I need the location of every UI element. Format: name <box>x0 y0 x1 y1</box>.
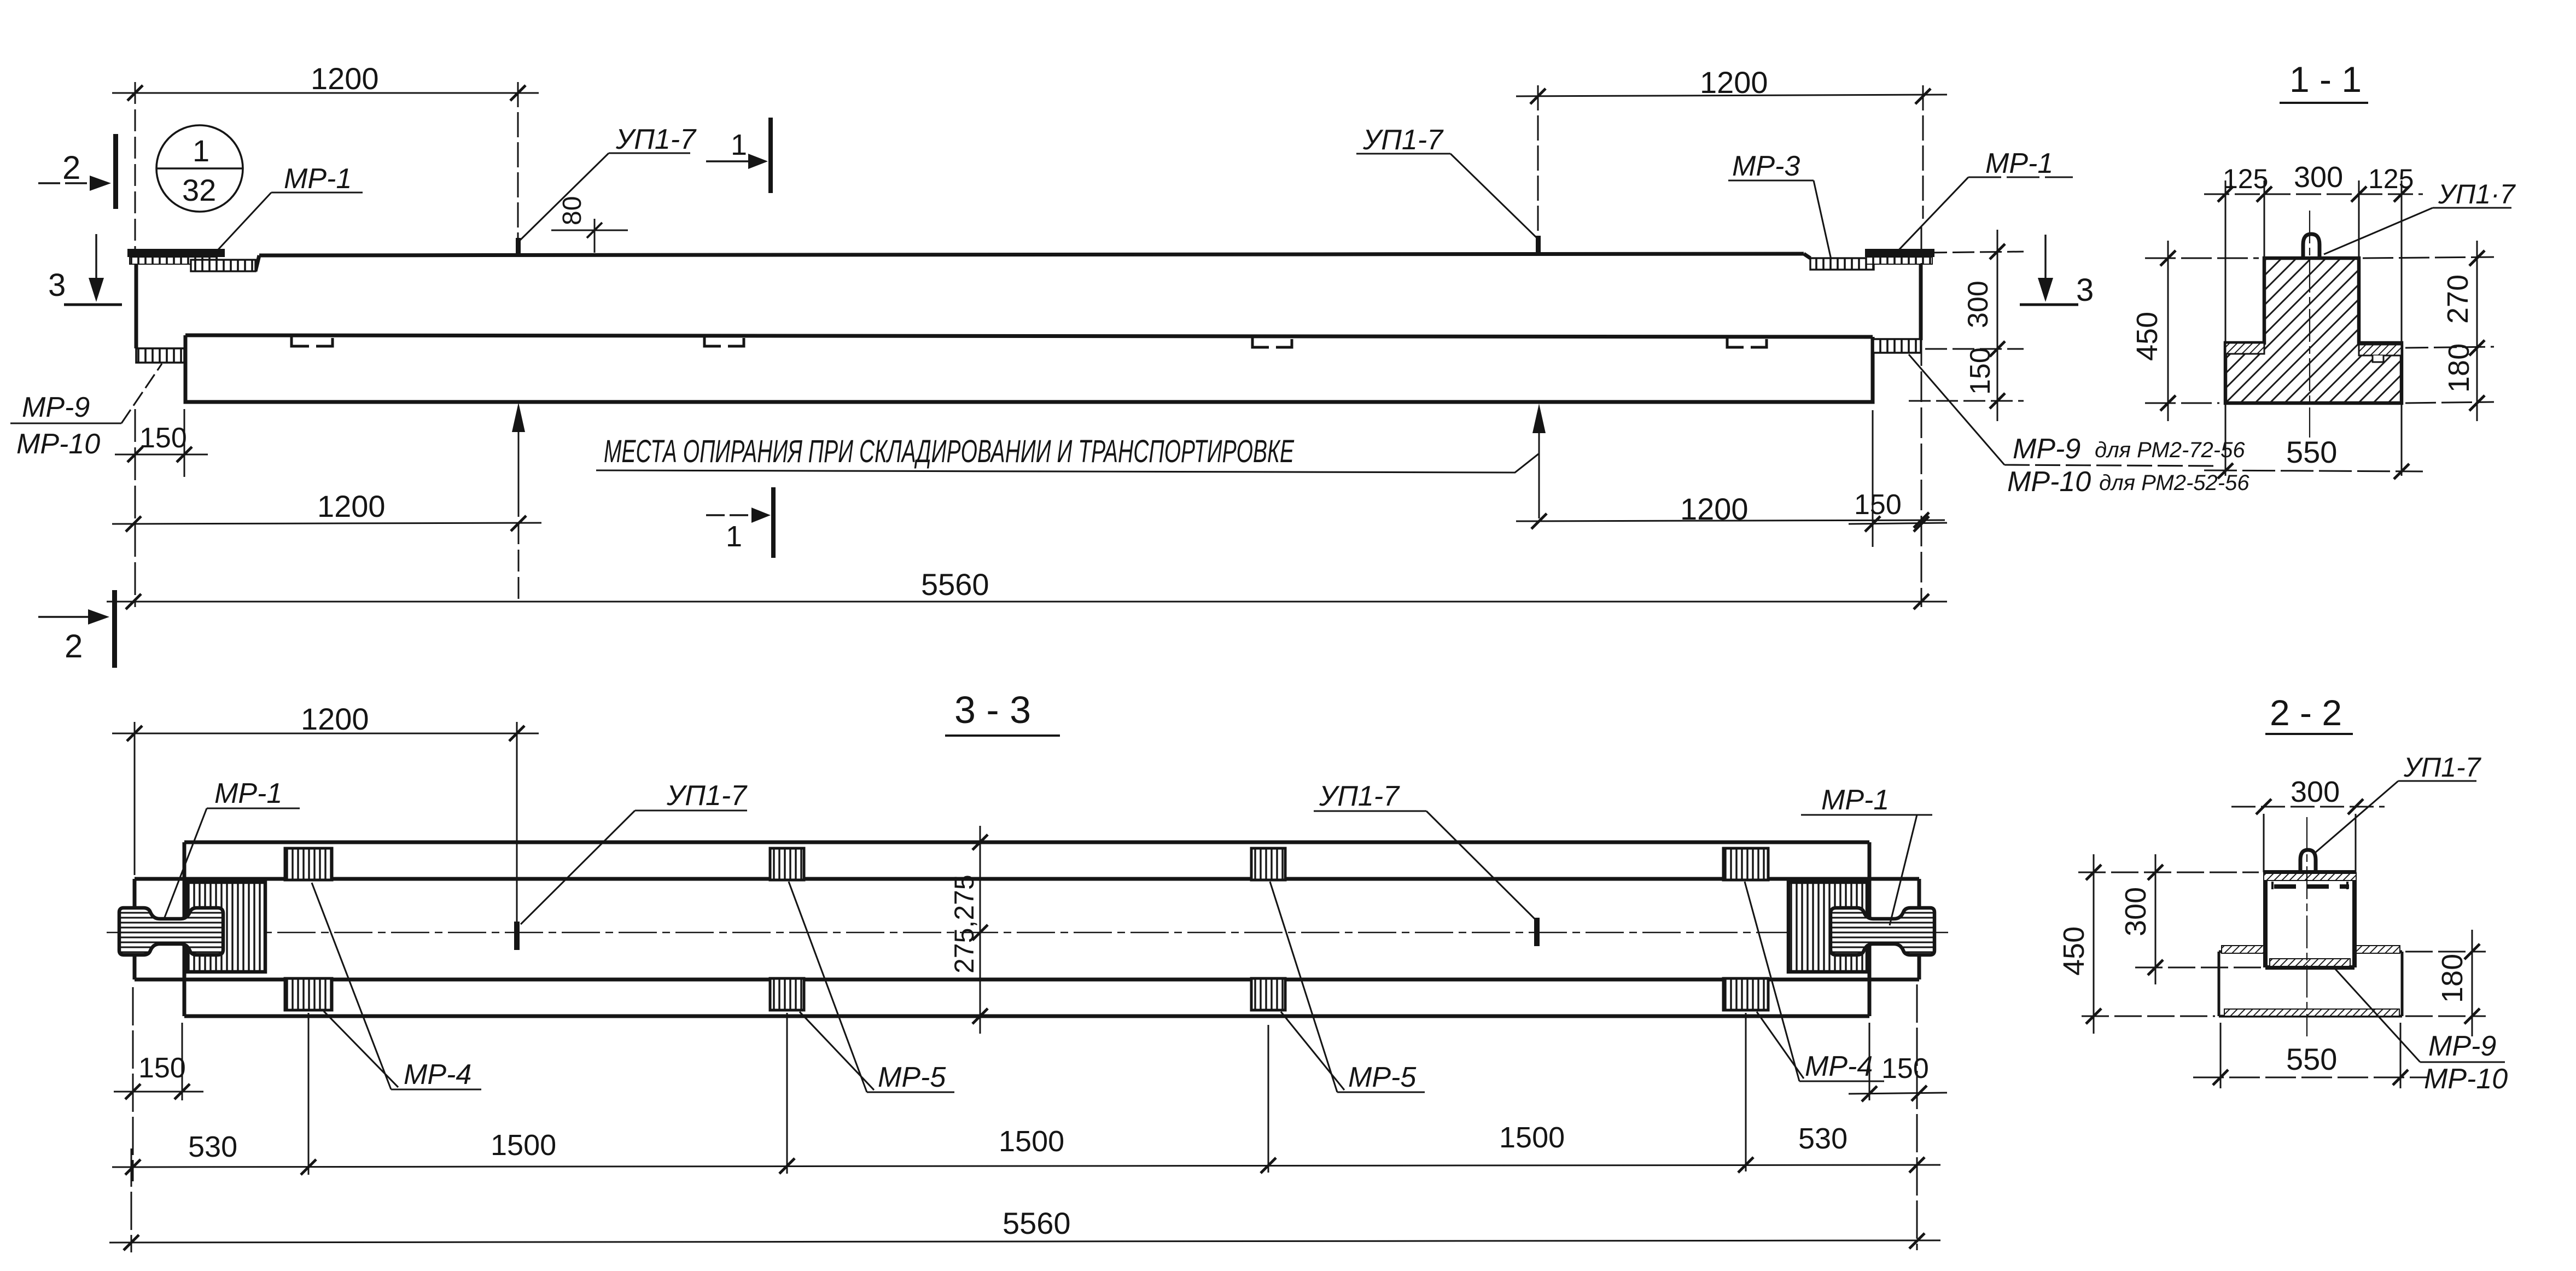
svg-text:МР-4: МР-4 <box>404 1059 471 1091</box>
svg-text:150: 150 <box>1881 1053 1929 1085</box>
svg-text:550: 550 <box>2286 435 2337 469</box>
svg-text:3: 3 <box>48 267 66 303</box>
svg-text:МР-9: МР-9 <box>22 392 90 423</box>
svg-text:МР-10: МР-10 <box>2424 1063 2508 1095</box>
svg-text:3 - 3: 3 - 3 <box>954 689 1031 731</box>
svg-text:450: 450 <box>2131 312 2164 361</box>
svg-text:2 - 2: 2 - 2 <box>2270 692 2342 733</box>
svg-text:2: 2 <box>65 628 83 664</box>
svg-text:МР-9: МР-9 <box>2428 1030 2496 1062</box>
svg-text:300: 300 <box>1962 281 1994 328</box>
svg-text:МР-1: МР-1 <box>1985 148 2053 179</box>
svg-text:УП1-7: УП1-7 <box>1362 124 1444 156</box>
svg-text:УП1-7: УП1-7 <box>666 780 748 812</box>
svg-text:МР-10: МР-10 <box>2007 466 2091 498</box>
svg-text:МР-3: МР-3 <box>1732 150 1800 182</box>
svg-text:УП1-7: УП1-7 <box>615 124 697 155</box>
svg-text:УП1·7: УП1·7 <box>2438 179 2516 209</box>
svg-text:3: 3 <box>2076 272 2094 308</box>
svg-text:180: 180 <box>2436 954 2469 1003</box>
svg-text:530: 530 <box>188 1130 237 1163</box>
svg-text:5560: 5560 <box>1003 1206 1071 1240</box>
svg-text:5560: 5560 <box>921 567 989 602</box>
svg-text:150: 150 <box>1965 347 1996 395</box>
svg-text:МР-1: МР-1 <box>284 163 352 195</box>
svg-text:300: 300 <box>2294 161 2343 194</box>
svg-text:1500: 1500 <box>491 1129 556 1162</box>
svg-text:530: 530 <box>1798 1122 1848 1155</box>
svg-text:1200: 1200 <box>317 489 386 523</box>
svg-text:1500: 1500 <box>999 1125 1064 1158</box>
svg-text:1: 1 <box>731 129 747 161</box>
svg-text:1200: 1200 <box>1700 65 1768 100</box>
svg-text:300: 300 <box>2119 887 2152 936</box>
svg-text:1200: 1200 <box>301 702 369 736</box>
svg-text:МЕСТА ОПИРАНИЯ ПРИ СКЛАДИРОВА: МЕСТА ОПИРАНИЯ ПРИ СКЛАДИРОВАНИИ И ТРАНС… <box>604 434 1295 469</box>
svg-text:270: 270 <box>2441 275 2474 324</box>
svg-text:125: 125 <box>2368 164 2414 194</box>
svg-text:1500: 1500 <box>1499 1121 1565 1154</box>
svg-text:1200: 1200 <box>311 61 379 96</box>
svg-text:УП1-7: УП1-7 <box>1319 780 1400 812</box>
svg-text:МР-5: МР-5 <box>878 1062 946 1093</box>
svg-text:180: 180 <box>2443 343 2475 393</box>
svg-text:1: 1 <box>193 133 209 168</box>
svg-text:150: 150 <box>138 1052 186 1084</box>
svg-text:МР-1: МР-1 <box>214 778 282 809</box>
svg-text:УП1-7: УП1-7 <box>2403 752 2482 783</box>
svg-text:2: 2 <box>62 149 80 186</box>
svg-text:МР-5: МР-5 <box>1348 1062 1417 1093</box>
svg-text:1: 1 <box>726 520 742 553</box>
svg-text:150: 150 <box>1854 489 1902 521</box>
svg-text:32: 32 <box>182 173 216 207</box>
svg-text:275,275: 275,275 <box>949 874 980 973</box>
svg-text:1 - 1: 1 - 1 <box>2289 59 2362 100</box>
svg-text:450: 450 <box>2058 926 2090 976</box>
svg-text:для РМ2-72-56: для РМ2-72-56 <box>2095 438 2245 462</box>
svg-text:550: 550 <box>2286 1042 2337 1076</box>
svg-text:300: 300 <box>2291 776 2340 808</box>
svg-text:80: 80 <box>558 196 587 225</box>
svg-text:МР-9: МР-9 <box>2013 433 2080 465</box>
svg-text:МР-4: МР-4 <box>1805 1051 1873 1082</box>
svg-text:МР-1: МР-1 <box>1821 784 1889 816</box>
svg-text:125: 125 <box>2223 164 2268 194</box>
svg-text:150: 150 <box>139 422 187 454</box>
svg-text:МР-10: МР-10 <box>16 428 100 460</box>
svg-text:1200: 1200 <box>1680 492 1749 526</box>
svg-text:для РМ2-52-56: для РМ2-52-56 <box>2099 471 2249 495</box>
